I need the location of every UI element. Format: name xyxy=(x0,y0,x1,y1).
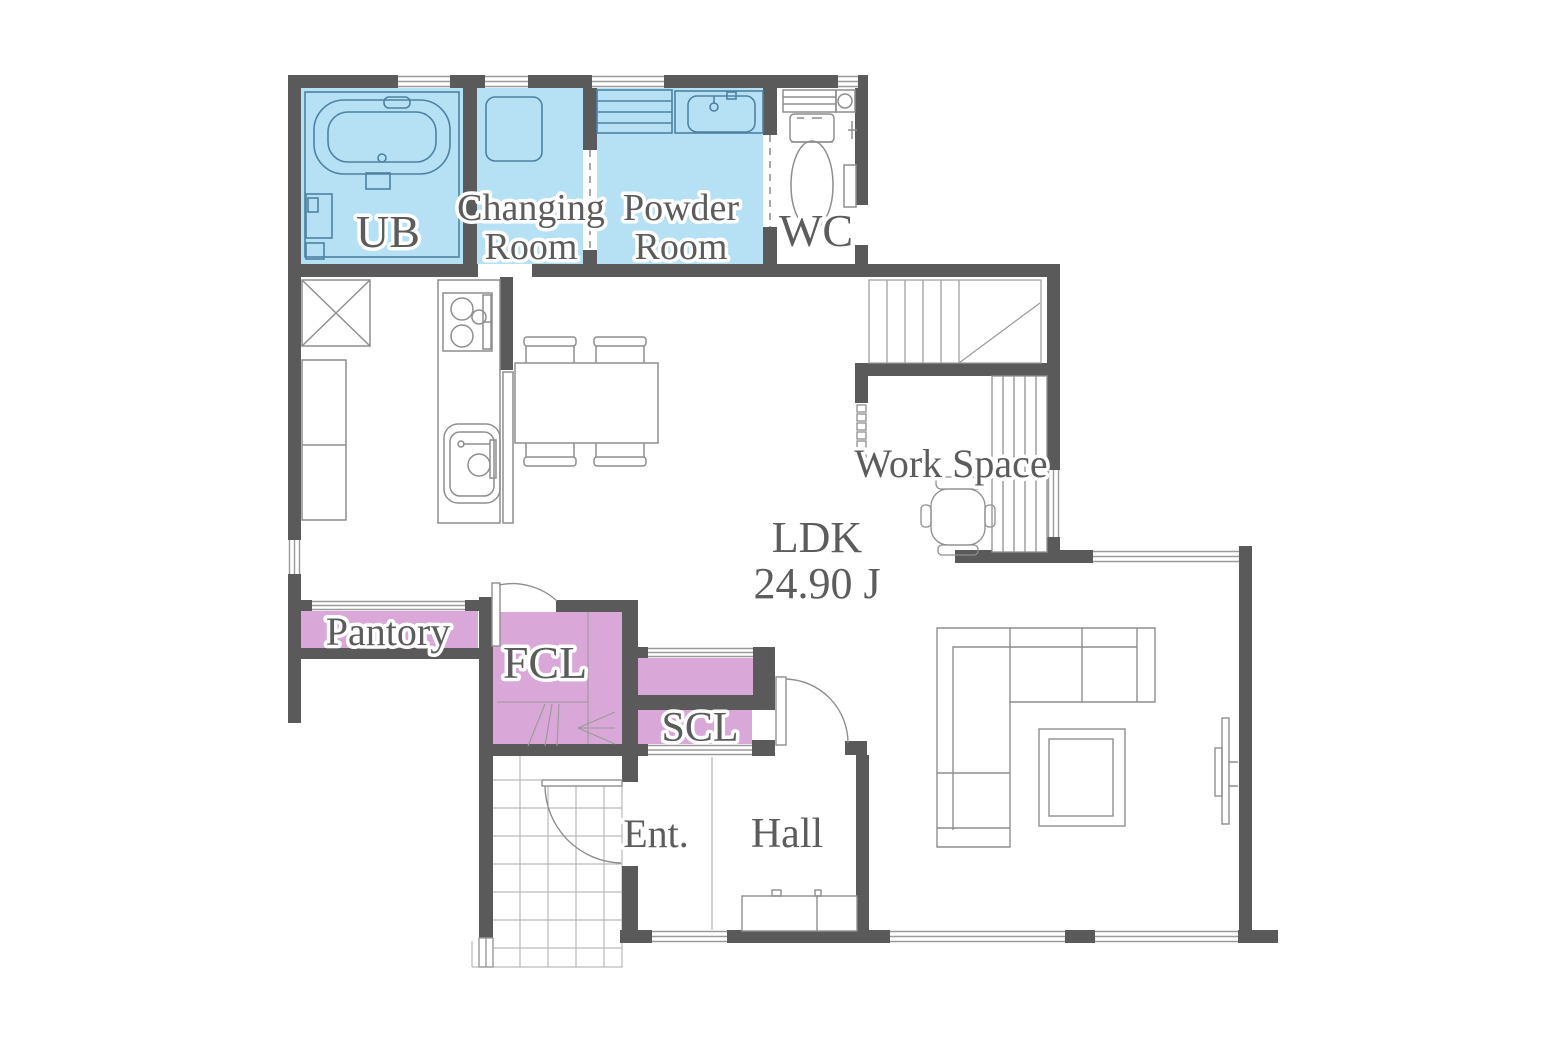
stairs-treads xyxy=(887,280,959,363)
wall-stairs-right xyxy=(1047,277,1060,470)
window-ub xyxy=(398,75,450,88)
label-ldk-area: 24.90 J xyxy=(753,559,880,608)
dining-chair-4 xyxy=(594,443,646,466)
room-closet-strip-floor xyxy=(638,658,753,695)
dining-chair-3 xyxy=(524,443,576,466)
cupboard xyxy=(302,360,346,520)
window-workspace-right xyxy=(1047,470,1060,537)
label-powder-1: Powder xyxy=(623,187,739,229)
wall-living-right xyxy=(1239,546,1252,943)
wall-sanitary-bottom-left xyxy=(290,264,478,277)
closet-door-strip-top xyxy=(648,647,753,658)
dining-chair-2 xyxy=(594,337,646,363)
stairs-diagonal xyxy=(959,303,1040,363)
label-powder-2: Room xyxy=(635,226,728,268)
tv-board xyxy=(1215,718,1238,824)
wall-bottom-seg2 xyxy=(727,930,890,943)
wall-ub-changing xyxy=(463,88,477,264)
storage-xbox xyxy=(302,280,370,346)
wall-powder-wc-stub xyxy=(763,227,777,264)
kitchen xyxy=(302,280,513,523)
wall-scl-post-upper xyxy=(753,647,775,710)
window-powder xyxy=(592,75,664,88)
label-changing-2: Room xyxy=(485,226,578,268)
label-changing-1: Changing xyxy=(457,187,605,229)
wall-powder-wc-top xyxy=(763,88,777,135)
wall-fcl-bottom xyxy=(479,744,638,756)
floor-plan: UB Changing Room Powder Room WC Work Spa… xyxy=(0,0,1568,1044)
coffee-table-outer xyxy=(1039,729,1125,826)
ldk-entry-door xyxy=(776,677,848,745)
wall-scl-post-lower xyxy=(752,740,775,756)
wall-kitchen-stub xyxy=(500,264,513,370)
window-living-bottom-1 xyxy=(890,930,1065,943)
label-ub: UB xyxy=(356,206,420,257)
window-changing xyxy=(485,75,528,88)
doorway-wc xyxy=(855,205,868,245)
porch-side-door xyxy=(479,938,493,967)
label-hall: Hall xyxy=(751,811,823,857)
wall-changing-powder-top xyxy=(583,88,597,150)
label-wc: WC xyxy=(779,205,853,256)
wall-fcl-right-lower xyxy=(622,866,638,943)
wall-hall-living xyxy=(856,755,869,931)
label-work-space: Work Space xyxy=(854,441,1047,486)
label-ldk: LDK xyxy=(772,513,863,562)
wall-ldk-door-stub xyxy=(845,741,867,755)
shoe-cabinet xyxy=(742,890,857,931)
dining-chair-1 xyxy=(524,337,576,363)
window-living-bottom-2 xyxy=(1095,930,1238,943)
staircase xyxy=(869,280,1041,363)
label-fcl: FCL xyxy=(503,637,587,688)
wall-workspace-left-stub xyxy=(855,376,868,403)
window-kitchen-left xyxy=(288,540,301,574)
wall-fcl-top-stub xyxy=(556,600,622,612)
wall-stairs-top xyxy=(855,264,1060,277)
wall-top xyxy=(290,75,868,88)
wall-bottom-seg3 xyxy=(1065,930,1095,943)
counter-side-panel xyxy=(503,372,513,523)
window-wc xyxy=(838,75,858,88)
wc-door-leaf xyxy=(844,165,856,207)
dining-set xyxy=(515,337,658,466)
floor-plan-page: UB Changing Room Powder Room WC Work Spa… xyxy=(0,0,1568,1044)
wc-hand-basin xyxy=(838,94,852,108)
window-hall-bottom xyxy=(652,930,727,943)
wc-counter xyxy=(783,90,836,112)
front-door xyxy=(542,780,622,863)
window-living-top xyxy=(1093,550,1239,563)
label-pantry: Pantory xyxy=(326,609,450,654)
label-entrance: Ent. xyxy=(623,811,689,856)
wall-fcl-left xyxy=(479,597,493,938)
wall-changing-powder-stub xyxy=(583,250,597,264)
living-furniture xyxy=(937,628,1238,847)
dining-table xyxy=(515,363,658,443)
wall-bottom-corner xyxy=(1238,930,1278,943)
office-chair xyxy=(921,477,995,555)
wall-stairs-bottom xyxy=(855,363,1048,376)
label-scl: SCL xyxy=(661,705,738,751)
wall-left-upper xyxy=(288,75,301,540)
